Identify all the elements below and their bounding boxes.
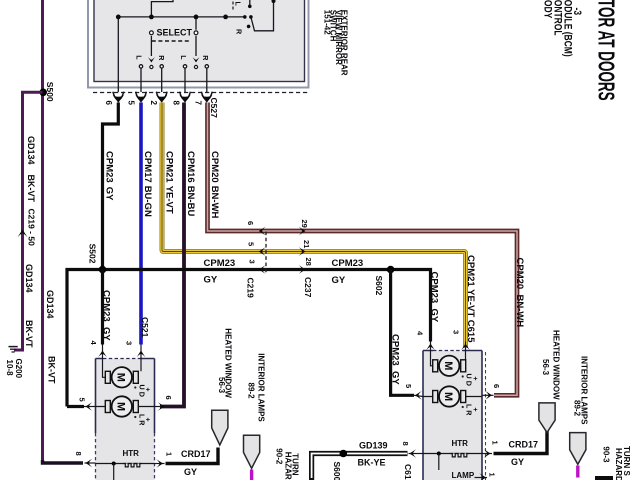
svg-text:90-2: 90-2 [274,448,283,465]
svg-text:S502: S502 [87,244,97,264]
svg-text:G200: G200 [14,359,23,379]
svg-text:S500: S500 [45,82,55,102]
svg-text:6: 6 [246,221,255,225]
svg-text:90-3: 90-3 [601,446,610,463]
svg-text:BK-VT: BK-VT [47,356,57,384]
svg-text:CPM16: CPM16 [185,151,196,183]
svg-text:CPM21: CPM21 [164,151,175,183]
svg-text:CPM23 GY: CPM23 GY [389,334,400,385]
svg-text:5: 5 [247,242,256,246]
svg-text:SELECT: SELECT [157,27,193,37]
svg-text:C527: C527 [209,98,219,119]
svg-text:GD134: GD134 [45,290,55,319]
svg-text:S602: S602 [374,276,384,296]
svg-text:+: + [144,418,151,422]
svg-text:1: 1 [491,441,500,445]
svg-text:GD139: GD139 [359,440,388,450]
svg-text:C219 - 50: C219 - 50 [27,209,37,247]
svg-text:R: R [235,29,244,35]
svg-text:BK-YE: BK-YE [358,457,386,467]
svg-text:28: 28 [304,258,313,266]
svg-text:HAZARD: HAZARD [614,448,623,480]
svg-text:8: 8 [172,101,181,106]
svg-text:M: M [115,373,127,382]
svg-text:CPM23: CPM23 [332,258,364,269]
svg-text:CRD17: CRD17 [509,440,539,450]
svg-text:TOR AT DOORS: TOR AT DOORS [594,0,620,101]
svg-text:CPM17: CPM17 [142,151,153,183]
svg-text:+: + [471,377,478,381]
svg-text:151-42: 151-42 [323,10,332,35]
svg-text:GY: GY [511,457,524,467]
svg-text:C521: C521 [140,317,150,338]
svg-text:M: M [442,392,454,401]
svg-text:BN-BU: BN-BU [185,186,196,217]
svg-text:R: R [157,55,166,61]
svg-text:C219: C219 [245,278,255,299]
svg-text:M: M [442,361,454,370]
svg-text:R: R [201,55,210,61]
svg-text:3: 3 [125,341,134,345]
svg-text:6: 6 [104,101,113,106]
svg-text:YE-VT: YE-VT [164,186,175,214]
svg-text:29: 29 [300,220,309,228]
svg-text:HEATED WINDOW: HEATED WINDOW [551,330,560,400]
svg-text:BN-WH: BN-WH [209,186,220,219]
svg-text:5: 5 [77,398,86,402]
svg-text:2: 2 [149,101,158,106]
svg-text:GY: GY [104,187,115,201]
svg-text:CPM20: CPM20 [209,151,220,183]
svg-text:10-8: 10-8 [5,360,14,377]
svg-text:3: 3 [452,330,461,334]
svg-text:BK-VT: BK-VT [26,175,36,203]
svg-text:CPM23: CPM23 [204,258,236,269]
svg-text:5: 5 [404,384,413,388]
svg-text:6: 6 [164,396,173,400]
svg-text:8: 8 [74,452,83,456]
svg-text:GY: GY [332,275,346,286]
svg-text:LAMP: LAMP [452,471,475,480]
svg-text:-3: -3 [571,8,584,16]
svg-text:8: 8 [401,442,410,446]
svg-text:7: 7 [193,101,202,106]
svg-text:CPM23: CPM23 [104,151,115,183]
svg-text:89-2: 89-2 [246,383,255,400]
svg-text:L: L [135,55,144,60]
svg-text:M: M [115,402,127,411]
svg-text:21: 21 [302,240,311,248]
svg-text:5: 5 [126,101,135,106]
svg-text:CPM21 YE-VT C615: CPM21 YE-VT C615 [465,255,476,343]
svg-text:+: + [471,408,478,412]
svg-text:GD134: GD134 [24,264,34,293]
svg-text:CRD17: CRD17 [181,449,211,459]
svg-text:GD134: GD134 [26,136,36,165]
svg-text:GY: GY [184,467,197,477]
svg-text:89-2: 89-2 [573,400,582,417]
svg-text:GY: GY [204,275,218,286]
svg-text:1: 1 [488,473,497,477]
svg-text:HTR: HTR [123,449,140,458]
svg-text:INTERIOR LAMPS: INTERIOR LAMPS [256,353,265,422]
svg-text:+: + [144,388,151,392]
svg-text:L: L [234,2,243,7]
svg-text:C615: C615 [403,464,413,480]
svg-text:CPM23 GY: CPM23 GY [429,272,440,323]
svg-text:CPM20 BN-WH: CPM20 BN-WH [514,258,525,328]
svg-text:C237: C237 [303,277,313,298]
svg-text:HTR: HTR [452,439,469,448]
svg-text:6: 6 [492,384,501,388]
svg-text:1: 1 [164,452,173,456]
svg-text:56-3: 56-3 [541,359,550,376]
svg-text:BK-VT: BK-VT [24,320,34,348]
svg-text:HAZARD: HAZARD [284,452,293,480]
svg-text:3: 3 [247,260,256,264]
svg-text:L: L [179,55,188,60]
svg-text:BU-GN: BU-GN [142,186,153,217]
svg-text:S600: S600 [332,462,342,480]
svg-text:56-3: 56-3 [217,377,226,394]
